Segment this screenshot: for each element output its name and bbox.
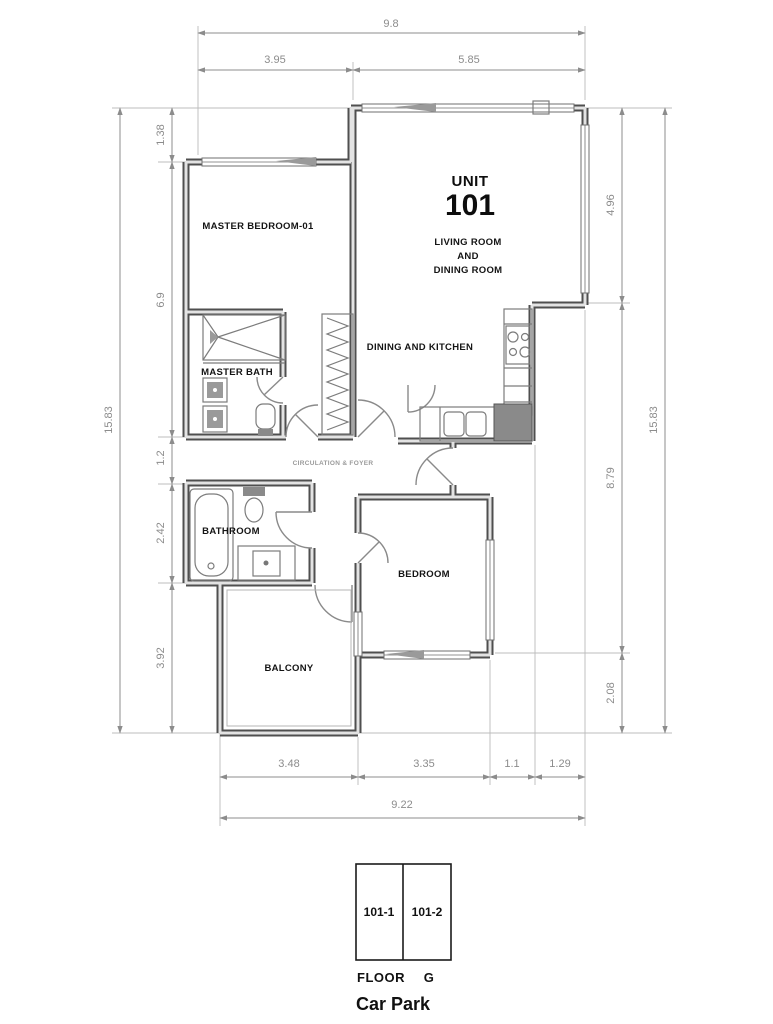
bathroom-vanity bbox=[238, 546, 295, 580]
car-park-stall-1: 101-1 bbox=[364, 905, 395, 919]
master-bedroom-window bbox=[202, 157, 316, 166]
balcony-railing bbox=[227, 590, 351, 726]
floor-plan-page: 9.8 3.95 5.85 15.83 1.38 6.9 1.2 2.42 3.… bbox=[0, 0, 773, 1024]
dim-left-seg-3: 1.2 bbox=[155, 450, 167, 465]
dim-left-seg-4: 2.42 bbox=[155, 522, 167, 543]
bedroom-door bbox=[358, 533, 388, 563]
master-bedroom-door bbox=[358, 400, 395, 437]
dim-left-total: 15.83 bbox=[103, 406, 115, 434]
balcony-window bbox=[354, 612, 362, 656]
master-toilet bbox=[256, 404, 275, 436]
master-bath-door bbox=[257, 377, 283, 403]
master-vanity bbox=[203, 378, 227, 432]
car-park-title: Car Park bbox=[356, 994, 431, 1014]
car-park-key: 101-1 101-2 FLOOR G Car Park bbox=[356, 864, 451, 1014]
unit-number: 101 bbox=[445, 189, 495, 222]
wardrobe bbox=[322, 314, 353, 435]
living-room-label-1: LIVING ROOM bbox=[434, 237, 501, 248]
car-park-stall-2: 101-2 bbox=[412, 905, 443, 919]
master-vestibule-door bbox=[286, 405, 318, 437]
dim-left-seg-5: 3.92 bbox=[155, 647, 167, 668]
dim-left-seg-2: 6.9 bbox=[155, 292, 167, 307]
dim-bottom-seg-4: 1.29 bbox=[549, 758, 570, 770]
dining-kitchen-label: DINING AND KITCHEN bbox=[367, 342, 473, 353]
living-room-side-window bbox=[581, 125, 589, 293]
bedroom-side-window bbox=[486, 540, 494, 640]
shower bbox=[203, 315, 285, 363]
pantry-door bbox=[408, 385, 435, 412]
bathroom-door bbox=[276, 512, 312, 548]
dim-right-seg-2: 8.79 bbox=[605, 467, 617, 488]
living-room-label-3: DINING ROOM bbox=[434, 265, 503, 276]
bedroom-bottom-window bbox=[384, 650, 470, 659]
stove bbox=[506, 326, 530, 364]
living-room-label-2: AND bbox=[457, 251, 478, 262]
dim-top-total: 9.8 bbox=[383, 18, 398, 30]
balcony-label: BALCONY bbox=[264, 663, 313, 674]
dim-right-seg-1: 4.96 bbox=[605, 194, 617, 215]
dim-top-seg-2: 5.85 bbox=[458, 54, 479, 66]
dim-right-seg-3: 2.08 bbox=[605, 682, 617, 703]
bathroom-toilet bbox=[243, 487, 265, 522]
dim-left-seg-1: 1.38 bbox=[155, 124, 167, 145]
dim-bottom-total: 9.22 bbox=[391, 799, 412, 811]
bedroom-label: BEDROOM bbox=[398, 569, 450, 580]
balcony-door bbox=[315, 585, 352, 622]
living-room-window bbox=[362, 101, 574, 114]
dim-bottom-seg-2: 3.35 bbox=[413, 758, 434, 770]
floor-value: G bbox=[424, 970, 435, 985]
master-bedroom-label: MASTER BEDROOM-01 bbox=[202, 221, 314, 232]
dim-top-seg-1: 3.95 bbox=[264, 54, 285, 66]
entry-door bbox=[416, 448, 453, 485]
kitchen-sink bbox=[444, 412, 486, 436]
circulation-label: CIRCULATION & FOYER bbox=[293, 460, 374, 467]
master-bath-label: MASTER BATH bbox=[201, 367, 273, 378]
unit-label: UNIT bbox=[452, 173, 489, 190]
dim-right-total: 15.83 bbox=[648, 406, 660, 434]
floor-plan-canvas: 9.8 3.95 5.85 15.83 1.38 6.9 1.2 2.42 3.… bbox=[0, 0, 773, 1024]
dim-bottom-seg-3: 1.1 bbox=[504, 758, 519, 770]
fridge bbox=[494, 404, 532, 441]
bathroom-label: BATHROOM bbox=[202, 526, 260, 537]
dim-bottom-seg-1: 3.48 bbox=[278, 758, 299, 770]
floor-label: FLOOR bbox=[357, 970, 405, 985]
